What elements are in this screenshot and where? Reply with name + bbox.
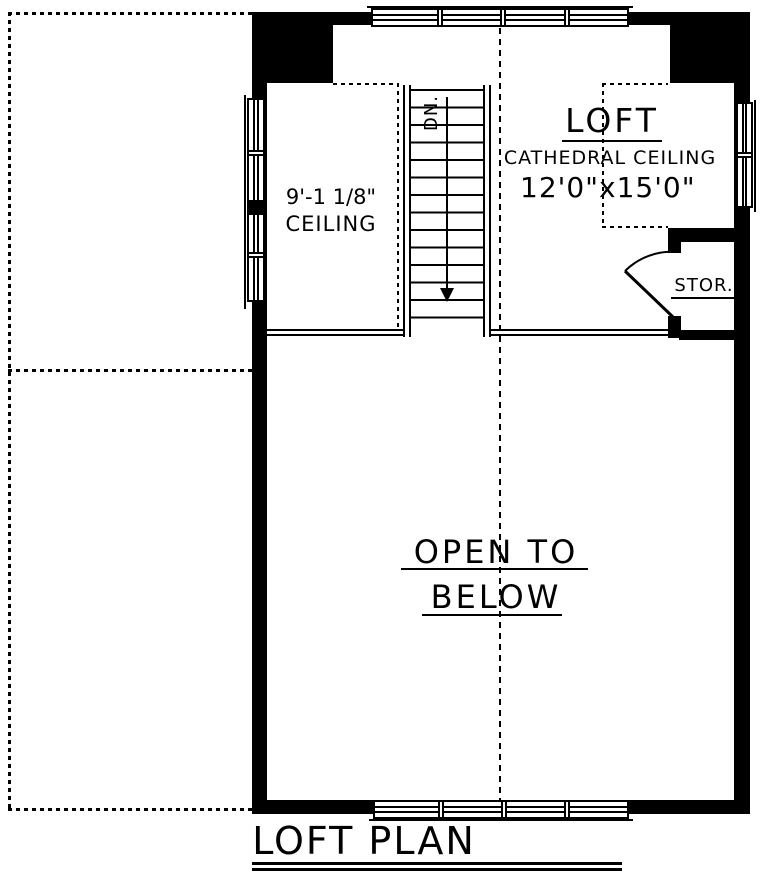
corner-block-top-left [252, 12, 333, 83]
page-title-underline-1 [252, 862, 622, 865]
loft-dashed-top [602, 83, 668, 85]
interior-wall-left-room [267, 329, 405, 336]
center-line [499, 28, 501, 800]
roof-outline-divider [8, 369, 254, 372]
storage-wall-bottom [679, 330, 735, 340]
left-window [247, 98, 265, 302]
loft-room-label-underline [562, 140, 662, 142]
open-to-below-line2: BELOW [410, 578, 582, 616]
ceiling-height-label: 9'-1 1/8" [281, 185, 381, 209]
loft-size-label: 12'0"x15'0" [520, 171, 690, 204]
corner-block-top-right [670, 12, 750, 83]
open-to-below-line1: OPEN TO [400, 533, 592, 571]
right-window-muntin [738, 152, 751, 158]
top-window-mullion [500, 10, 506, 25]
open-to-below-underline2 [422, 614, 562, 616]
open-to-below-underline1 [401, 568, 588, 570]
right-window-sill [754, 100, 756, 212]
loft-ceiling-label: CATHEDRAL CEILING [500, 147, 720, 169]
page-title-underline-2 [252, 868, 622, 871]
roof-outline-bottom-edge [8, 808, 254, 811]
left-room-dashed-side [397, 83, 399, 330]
stair-stringer-right [483, 85, 491, 337]
bottom-window [373, 800, 629, 819]
bottom-window-mullion [501, 802, 507, 817]
storage-room-label: STOR. [669, 275, 739, 296]
roof-outline-left-edge [8, 12, 11, 811]
top-window [371, 8, 629, 27]
left-room-dashed-top [333, 83, 398, 85]
storage-room-label-underline [671, 297, 738, 299]
left-window-sill [244, 95, 246, 309]
loft-dashed-bottom [602, 226, 668, 228]
page-title: LOFT PLAN [250, 819, 478, 863]
bottom-window-mullion [564, 802, 570, 817]
stairs-down-arrowhead [440, 288, 454, 302]
left-window-muntin [249, 150, 263, 156]
bottom-window-mullion [438, 802, 444, 817]
top-window-mullion [564, 10, 570, 25]
roof-outline-top-edge [8, 12, 254, 15]
right-window [736, 102, 753, 208]
stairs-direction-label: DN. [408, 90, 454, 136]
interior-wall-loft [489, 329, 669, 336]
left-window-muntin [249, 252, 263, 258]
ceiling-text-label: CEILING [281, 212, 381, 236]
loft-floor-plan: DN. LOFT CATHEDRAL CEILING 12'0"x15'0" 9… [0, 0, 760, 881]
loft-room-label: LOFT [532, 101, 692, 140]
left-window-mullion [247, 200, 265, 215]
top-window-mullion [437, 10, 443, 25]
